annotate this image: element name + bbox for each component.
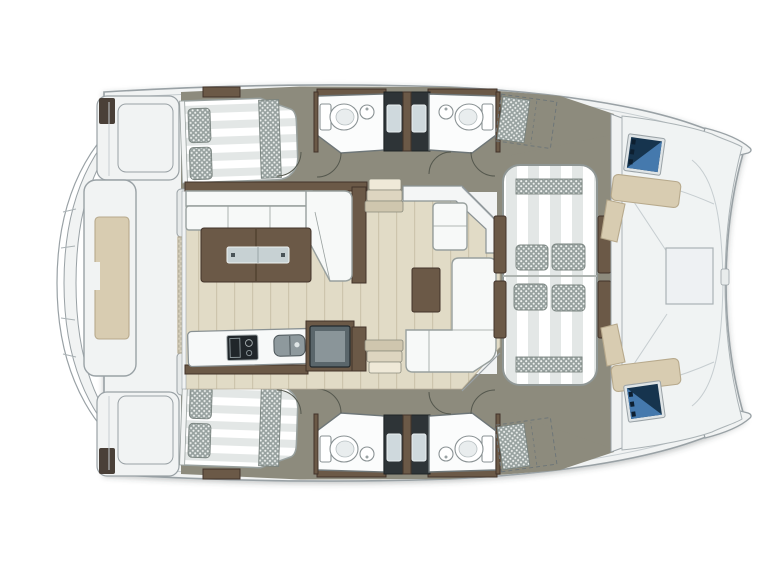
salon	[182, 179, 500, 391]
dinette-table	[412, 268, 440, 312]
yacht-floor-plan-canvas	[0, 0, 768, 576]
toilet-tank	[320, 104, 331, 130]
shower-block	[384, 92, 430, 151]
stove-icon	[227, 335, 259, 361]
forward-crossbeam-wall	[611, 114, 622, 452]
galley	[188, 328, 311, 366]
sink-double-icon	[274, 335, 306, 357]
bow-handle	[721, 269, 729, 285]
stairwell-wall	[352, 187, 366, 283]
bow-hatch-port	[624, 134, 666, 176]
lounge-cushion	[552, 285, 585, 311]
cabin-headboard-trim	[203, 87, 240, 97]
shower-window	[412, 105, 426, 132]
toilet-tank	[482, 104, 493, 130]
deck-locker-hatch	[666, 248, 713, 304]
sink-icon	[360, 105, 374, 119]
double-berth	[180, 97, 299, 183]
bow-deck	[601, 116, 742, 450]
swim-platform-starboard	[97, 392, 179, 476]
lounge-side-table	[494, 281, 506, 338]
swim-platform-port	[97, 96, 179, 180]
lounge-side-table	[494, 216, 506, 273]
tv-unit	[306, 321, 366, 371]
aft-platform-bench	[84, 180, 136, 376]
stairs-to-starboard-hull	[365, 340, 403, 373]
salon-top-wall	[185, 182, 367, 191]
lounge-cushion	[516, 245, 548, 270]
stairs-to-port-hull	[365, 179, 403, 212]
shower-window	[387, 105, 401, 132]
dinette-seat	[433, 203, 467, 250]
sink-icon	[439, 105, 453, 119]
deck-plan-drawing	[0, 0, 768, 576]
lounge-cushion	[514, 284, 547, 310]
forward-lounge-sunbed	[503, 165, 597, 385]
coffee-table	[201, 228, 311, 282]
lounge-cushion	[552, 244, 585, 270]
bow-hatch-starboard	[624, 381, 666, 423]
